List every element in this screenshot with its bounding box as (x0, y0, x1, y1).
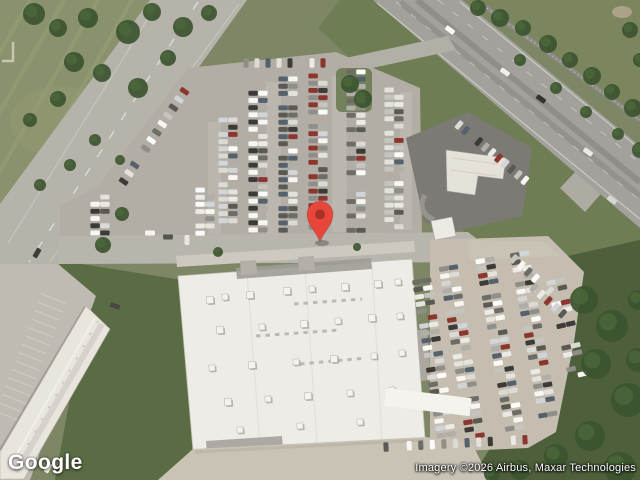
store-building (178, 256, 431, 454)
satellite-imagery (0, 0, 640, 480)
pin-dot (315, 210, 325, 220)
map-canvas[interactable]: Google Imagery ©2026 Airbus, Maxar Techn… (0, 0, 640, 480)
imagery-attribution: Imagery ©2026 Airbus, Maxar Technologies (415, 463, 636, 474)
google-logo[interactable]: Google (8, 452, 83, 473)
